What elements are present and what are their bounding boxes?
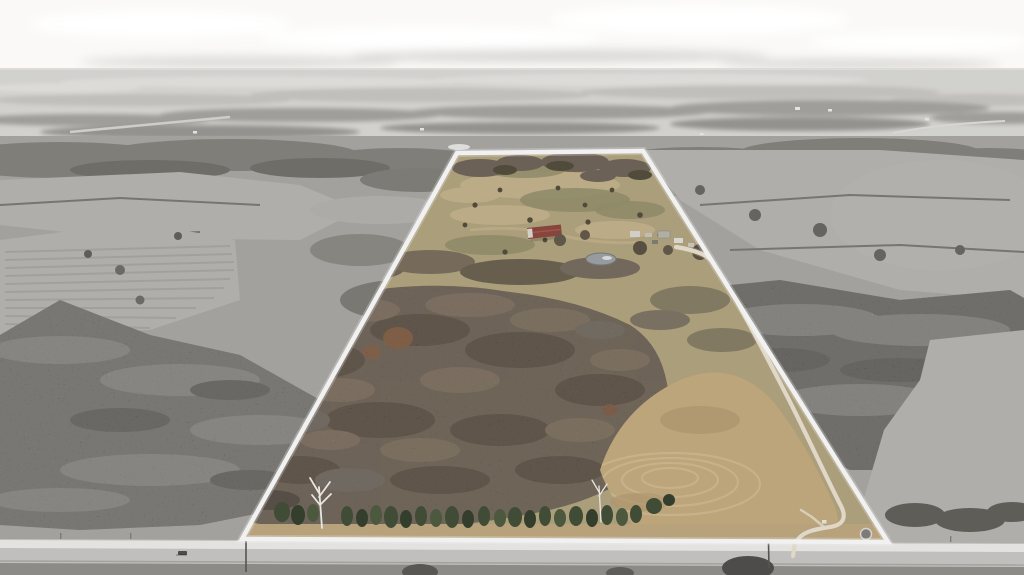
photo-grain: [0, 70, 1024, 575]
aerial-photo-canvas: [0, 0, 1024, 575]
aerial-photo: [0, 0, 1024, 575]
